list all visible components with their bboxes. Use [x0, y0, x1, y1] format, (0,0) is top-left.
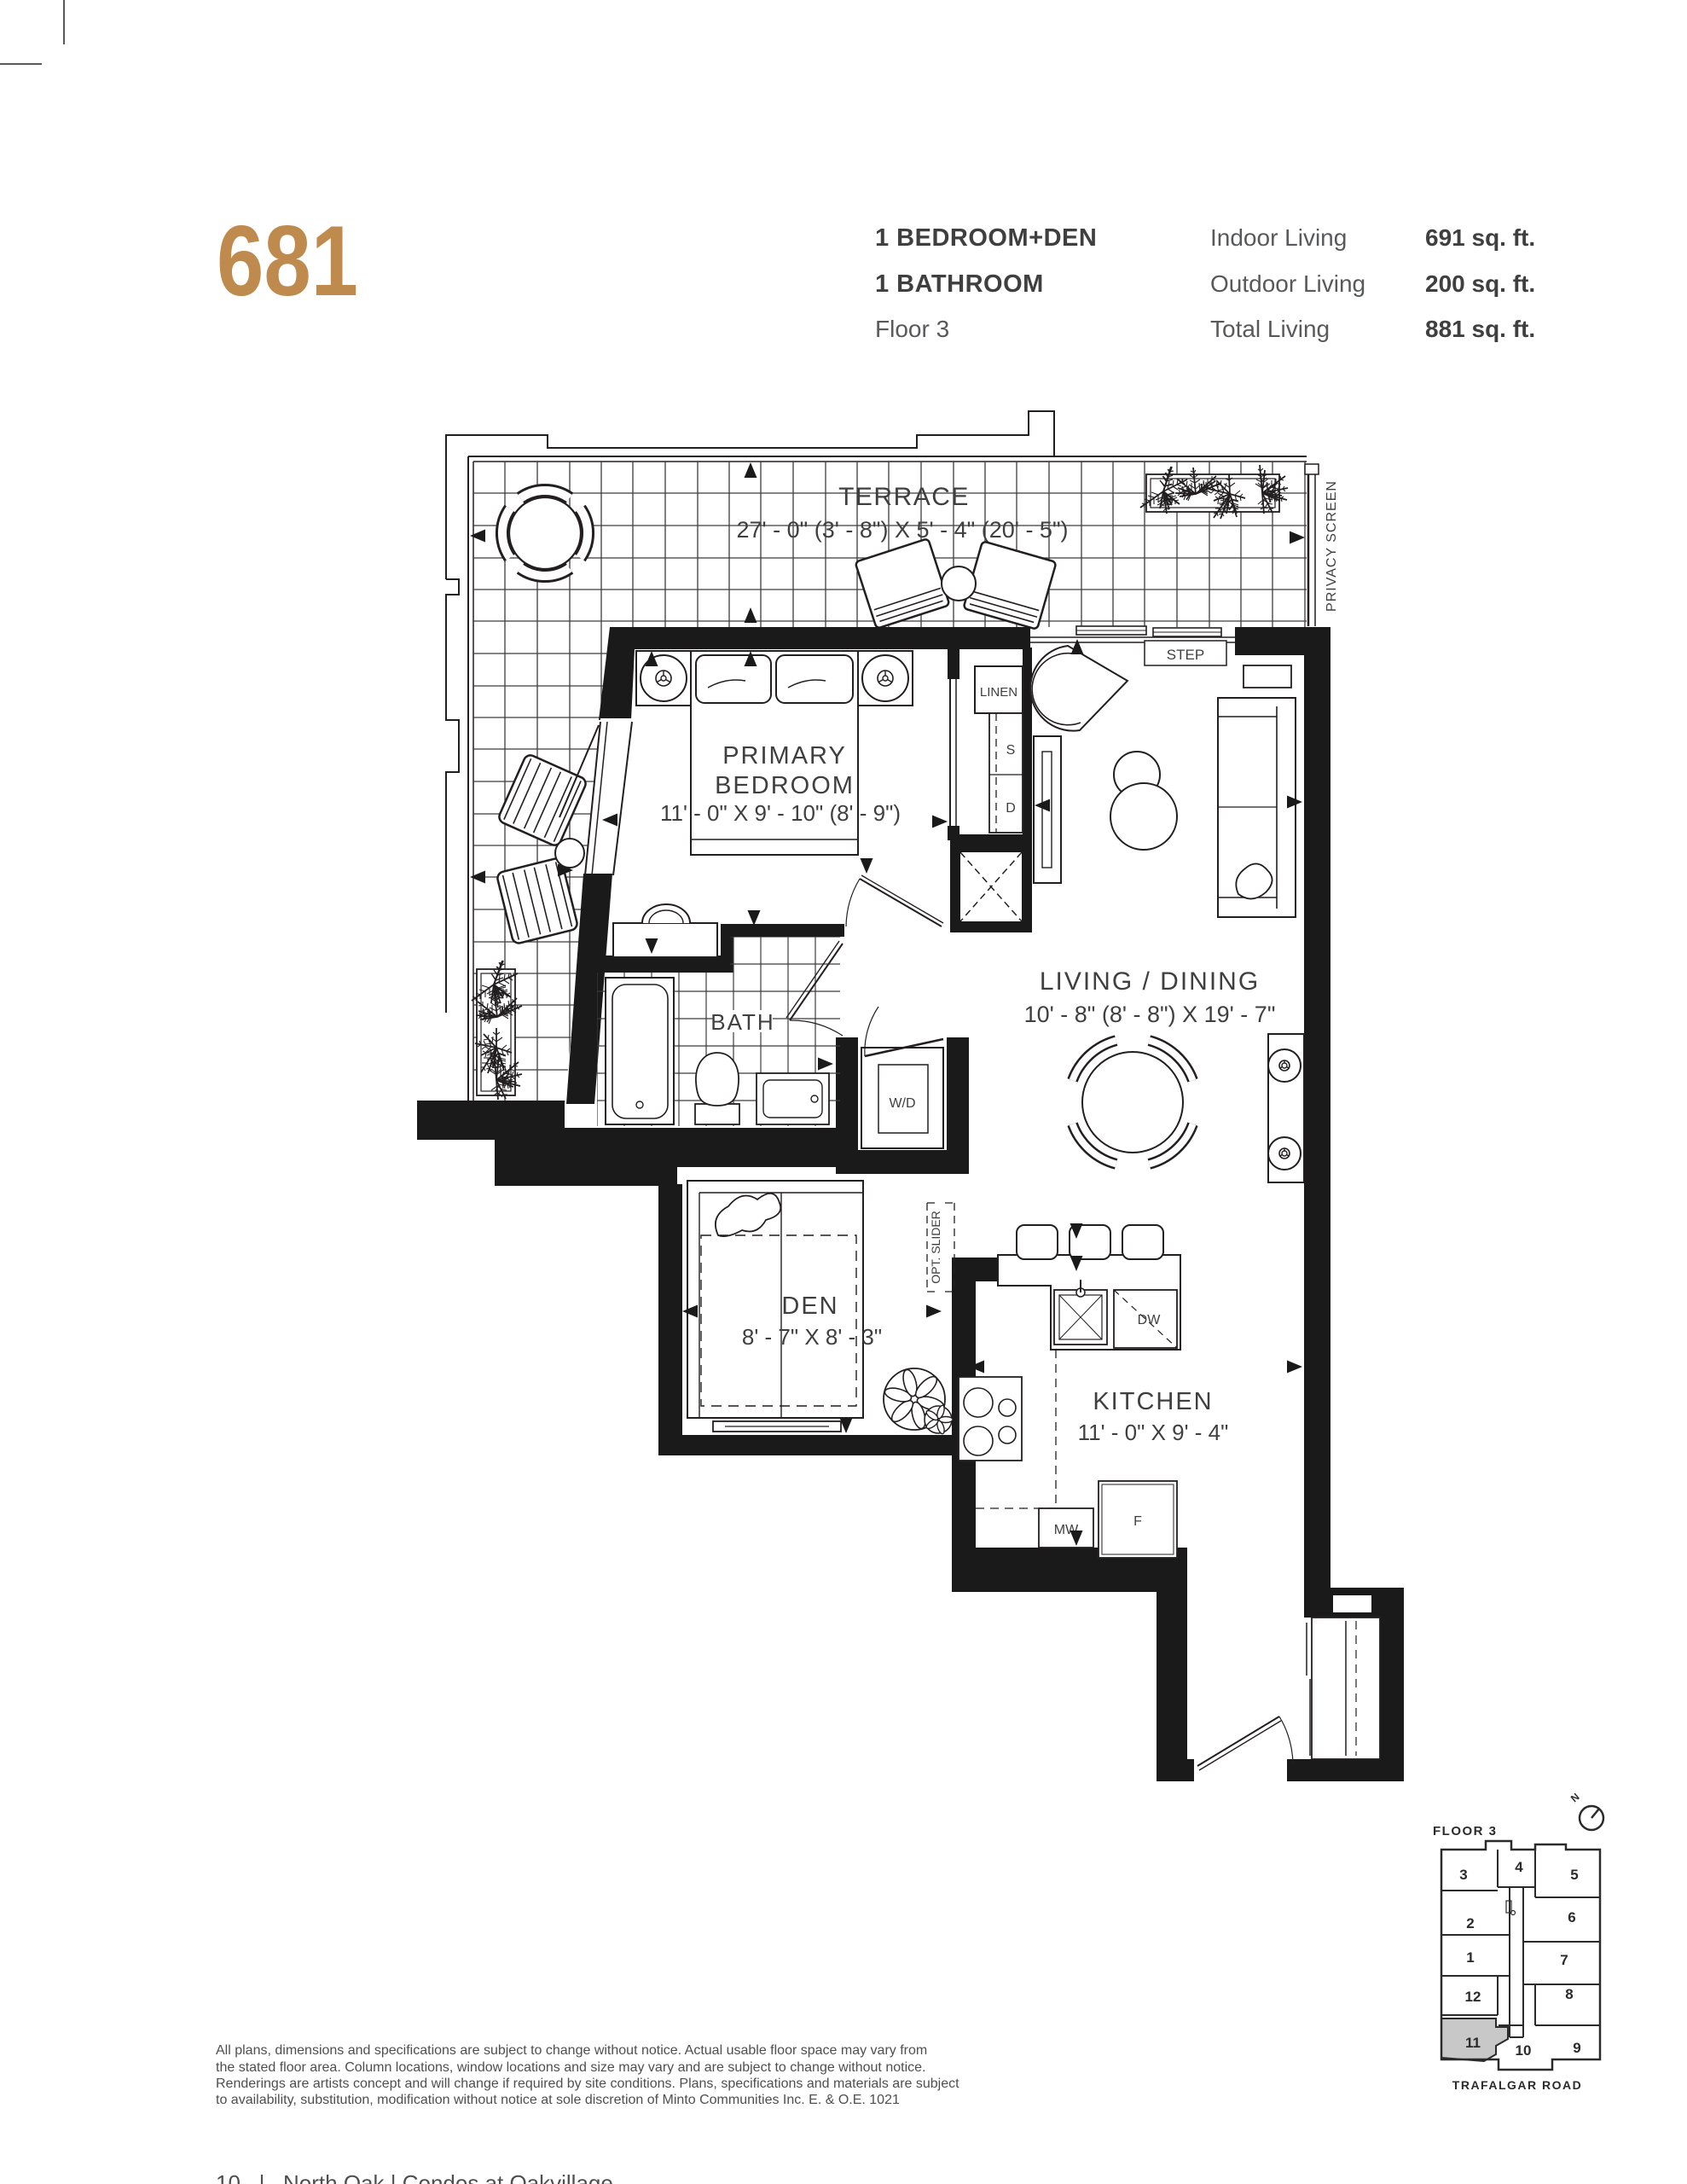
svg-text:BEDROOM: BEDROOM	[715, 772, 855, 799]
svg-text:PRIMARY: PRIMARY	[722, 742, 847, 770]
svg-text:10: 10	[1516, 2042, 1532, 2059]
svg-text:the stated floor area. Column: the stated floor area. Column locations,…	[216, 2060, 925, 2075]
svg-text:W/D: W/D	[889, 1096, 915, 1111]
svg-text:10' - 8" (8' - 8") X 19' - 7": 10' - 8" (8' - 8") X 19' - 7"	[1024, 1002, 1276, 1027]
svg-text:DW: DW	[1138, 1313, 1162, 1327]
svg-text:TERRACE: TERRACE	[838, 483, 970, 511]
svg-text:LINEN: LINEN	[980, 685, 1017, 700]
svg-text:691 sq. ft.: 691 sq. ft.	[1425, 224, 1535, 251]
svg-text:Renderings are artists concept: Renderings are artists concept and will …	[216, 2077, 959, 2091]
svg-text:All plans, dimensions and spec: All plans, dimensions and specifications…	[216, 2043, 927, 2058]
svg-text:4: 4	[1515, 1859, 1523, 1875]
svg-text:8' - 7" X 8' - 3": 8' - 7" X 8' - 3"	[742, 1324, 882, 1350]
svg-text:8: 8	[1565, 1986, 1573, 2002]
svg-text:STEP: STEP	[1167, 647, 1204, 663]
svg-text:D: D	[1006, 801, 1016, 816]
svg-text:881 sq. ft.: 881 sq. ft.	[1425, 316, 1535, 342]
svg-text:1 BEDROOM+DEN: 1 BEDROOM+DEN	[875, 224, 1097, 252]
svg-text:11: 11	[1465, 2035, 1481, 2051]
svg-text:5: 5	[1570, 1867, 1578, 1883]
svg-text:TRAFALGAR ROAD: TRAFALGAR ROAD	[1452, 2078, 1582, 2092]
svg-text:6: 6	[1568, 1909, 1575, 1926]
svg-text:27' - 0" (3' - 8") X 5' - 4" (: 27' - 0" (3' - 8") X 5' - 4" (20' - 5")	[736, 517, 1068, 543]
svg-text:11' - 0" X 9' - 4": 11' - 0" X 9' - 4"	[1078, 1420, 1229, 1445]
svg-text:Floor 3: Floor 3	[875, 316, 949, 342]
svg-text:2: 2	[1466, 1915, 1474, 1931]
svg-text:KITCHEN: KITCHEN	[1093, 1388, 1213, 1415]
svg-text:10 | North Oak | Condos at: 10 | North Oak | Condos at Oakvillage	[216, 2170, 613, 2184]
svg-text:7: 7	[1560, 1952, 1568, 1968]
svg-text:Total Living: Total Living	[1210, 316, 1330, 342]
svg-text:681: 681	[217, 205, 358, 317]
svg-text:to availability, substitution,: to availability, substitution, modificat…	[216, 2093, 900, 2107]
svg-text:1 BATHROOM: 1 BATHROOM	[875, 270, 1044, 298]
svg-text:OPT. SLIDER: OPT. SLIDER	[929, 1211, 942, 1284]
svg-text:Indoor Living: Indoor Living	[1210, 224, 1347, 251]
svg-text:Outdoor Living: Outdoor Living	[1210, 270, 1365, 297]
svg-text:PRIVACY SCREEN: PRIVACY SCREEN	[1325, 480, 1339, 612]
svg-text:LIVING / DINING: LIVING / DINING	[1040, 967, 1260, 996]
svg-text:200 sq. ft.: 200 sq. ft.	[1425, 270, 1535, 297]
svg-text:12: 12	[1465, 1989, 1481, 2005]
svg-text:3: 3	[1459, 1867, 1467, 1883]
svg-text:FLOOR 3: FLOOR 3	[1433, 1824, 1498, 1838]
svg-text:N: N	[1568, 1791, 1582, 1804]
svg-text:1: 1	[1466, 1949, 1474, 1966]
svg-text:F: F	[1133, 1514, 1142, 1529]
svg-text:S: S	[1006, 743, 1016, 758]
svg-text:BATH: BATH	[710, 1009, 774, 1035]
svg-text:9: 9	[1573, 2040, 1580, 2056]
svg-text:DEN: DEN	[781, 1292, 838, 1320]
svg-text:11' - 0" X 9' - 10" (8' - 9"): 11' - 0" X 9' - 10" (8' - 9")	[660, 800, 901, 826]
